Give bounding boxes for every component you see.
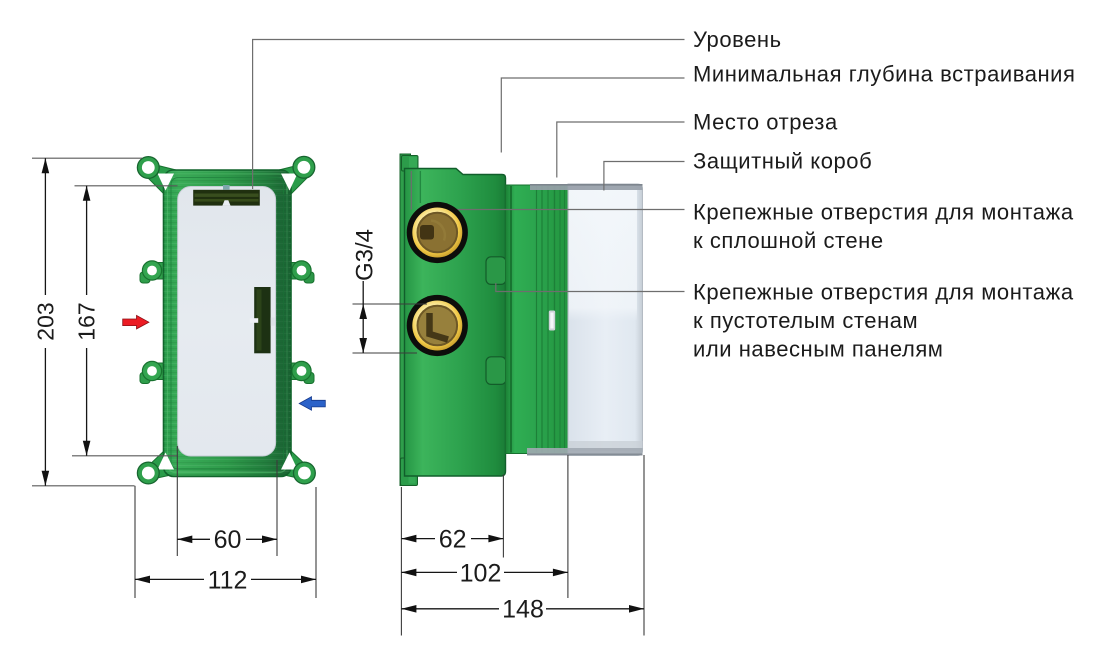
svg-text:или навесным панелям: или навесным панелям [693, 337, 943, 362]
svg-text:к пустотелым стенам: к пустотелым стенам [693, 308, 918, 333]
svg-text:Уровень: Уровень [693, 27, 782, 52]
svg-text:Место отреза: Место отреза [693, 110, 838, 135]
svg-text:к сплошной стене: к сплошной стене [693, 228, 884, 253]
svg-text:112: 112 [208, 566, 248, 594]
svg-text:Защитный короб: Защитный короб [693, 149, 872, 174]
svg-text:167: 167 [74, 302, 100, 340]
svg-text:102: 102 [460, 559, 502, 587]
svg-text:60: 60 [214, 526, 242, 554]
svg-text:203: 203 [33, 302, 59, 340]
svg-text:Крепежные отверстия для монтаж: Крепежные отверстия для монтажа [693, 280, 1074, 305]
svg-text:Крепежные отверстия для монтаж: Крепежные отверстия для монтажа [693, 200, 1074, 225]
svg-text:Минимальная глубина встраивани: Минимальная глубина встраивания [693, 62, 1076, 87]
svg-text:62: 62 [439, 526, 467, 554]
svg-text:G3/4: G3/4 [352, 229, 379, 281]
svg-text:148: 148 [502, 596, 544, 624]
